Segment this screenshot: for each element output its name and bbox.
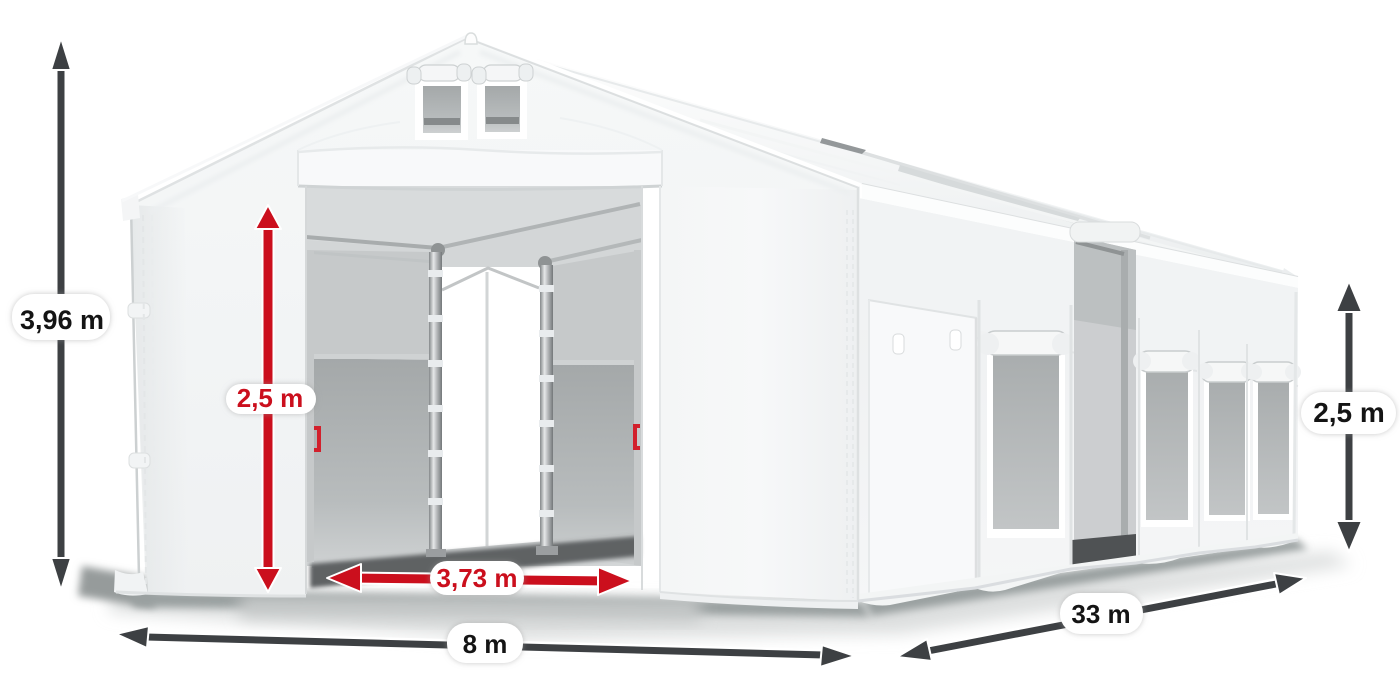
svg-text:2,5 m: 2,5 m [1313, 397, 1385, 428]
svg-text:3,73 m: 3,73 m [437, 563, 518, 593]
svg-text:33 m: 33 m [1071, 599, 1130, 629]
svg-text:8 m: 8 m [463, 629, 508, 659]
svg-text:2,5 m: 2,5 m [237, 383, 304, 413]
svg-text:3,96 m: 3,96 m [20, 305, 104, 335]
